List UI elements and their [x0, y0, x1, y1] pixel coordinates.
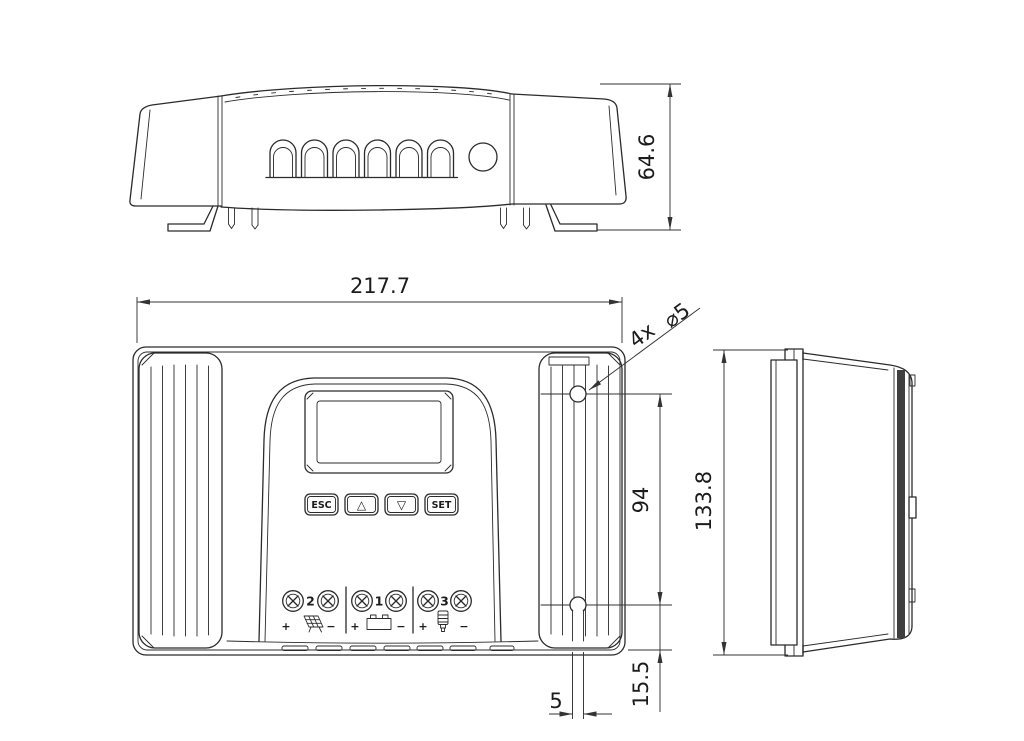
down-triangle-icon: ▽ — [397, 498, 407, 512]
technical-drawing: 64.6 217.7 — [0, 0, 1024, 741]
round-opening — [469, 143, 497, 171]
hole-spacing-label: 94 — [629, 487, 653, 514]
side-view — [771, 349, 916, 656]
back-plate — [771, 360, 797, 645]
screw-terminal-icon — [386, 591, 407, 612]
set-button: SET — [425, 494, 458, 515]
hole-count-label: 4x — [624, 318, 659, 353]
load-plus-label: + — [418, 620, 427, 633]
front-view: ESC △ ▽ SET 2 1 — [133, 347, 625, 655]
screw-terminal-icon — [451, 591, 472, 612]
down-button: ▽ — [385, 494, 418, 515]
top-view — [0, 86, 626, 231]
dim-overall-height: 133.8 — [692, 350, 788, 655]
dim-hole-bottom-offset: 15.5 — [628, 605, 672, 712]
battery-minus-label: − — [396, 620, 405, 633]
mounting-hole-top — [570, 386, 586, 402]
battery-plus-label: + — [350, 620, 359, 633]
screw-terminal-icon — [352, 591, 373, 612]
load-lamp-icon — [438, 611, 448, 632]
left-heatsink-wedge — [130, 96, 221, 206]
solar-panel-icon — [304, 616, 323, 632]
solar-minus-label: − — [326, 620, 335, 633]
esc-button: ESC — [305, 494, 338, 515]
set-button-label: SET — [432, 500, 452, 511]
load-minus-label: − — [459, 620, 468, 633]
right-fin-block — [539, 353, 622, 648]
height-dim-label: 133.8 — [692, 471, 716, 531]
dim-overall-width: 217.7 — [137, 274, 622, 343]
terminal-slots — [266, 140, 458, 178]
terminal-number-1: 1 — [375, 594, 384, 609]
technical-drawing-page: 64.6 217.7 — [0, 0, 1024, 741]
slot-width-label: 5 — [549, 689, 562, 713]
fin-edge-strip — [897, 370, 905, 638]
mounting-foot-right — [546, 205, 597, 231]
depth-dim-label: 64.6 — [635, 134, 659, 181]
side-clip-tab — [909, 497, 916, 518]
width-dim-label: 217.7 — [350, 274, 410, 298]
solar-plus-label: + — [281, 620, 290, 633]
up-button: △ — [345, 494, 378, 515]
dim-slot-width: 5 — [549, 652, 612, 719]
dim-hole-spacing: 94 — [588, 394, 672, 605]
hole-bottom-offset-label: 15.5 — [629, 661, 653, 708]
dim-overall-depth: 64.6 — [597, 84, 681, 230]
lcd-display — [305, 391, 453, 473]
terminal-number-3: 3 — [440, 594, 449, 609]
screw-terminal-icon — [283, 591, 304, 612]
bottom-vents — [227, 641, 538, 651]
screw-terminal-icon — [418, 591, 439, 612]
screw-terminal-icon — [318, 591, 339, 612]
left-fin-block — [139, 353, 222, 648]
mounting-foot-left — [168, 206, 218, 231]
up-triangle-icon: △ — [357, 498, 367, 512]
battery-icon — [367, 615, 391, 630]
hole-diameter-label: ⌀5 — [659, 298, 694, 333]
esc-button-label: ESC — [311, 500, 331, 511]
hole-callout: 4x ⌀5 — [589, 298, 700, 390]
terminal-number-2: 2 — [306, 594, 315, 609]
snap-pins — [229, 208, 530, 229]
